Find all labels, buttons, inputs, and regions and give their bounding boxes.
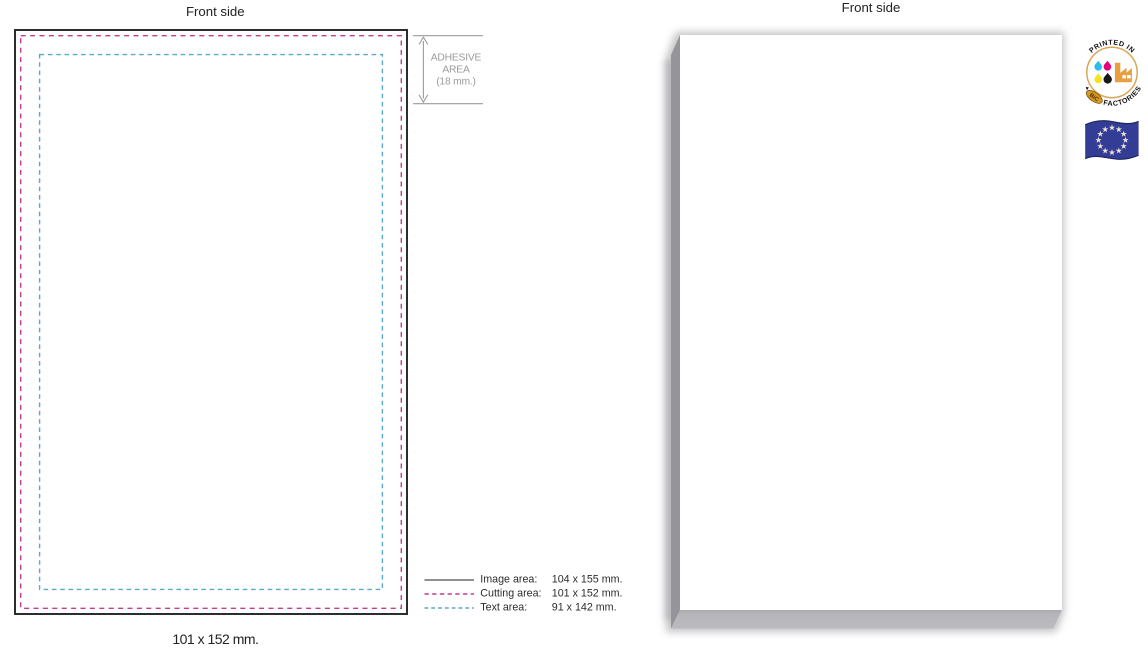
svg-text:Cutting area:: Cutting area: xyxy=(480,588,541,600)
svg-text:Image area:: Image area: xyxy=(480,574,537,586)
svg-text:91 x 142 mm.: 91 x 142 mm. xyxy=(552,602,617,614)
svg-text:Front side: Front side xyxy=(186,4,245,19)
svg-text:Text area:: Text area: xyxy=(480,602,527,614)
svg-text:104 x 155 mm.: 104 x 155 mm. xyxy=(552,574,623,586)
svg-text:101 x 152 mm.: 101 x 152 mm. xyxy=(172,631,258,647)
svg-text:ADHESIVE: ADHESIVE xyxy=(431,52,482,63)
svg-text:AREA: AREA xyxy=(442,64,470,75)
svg-text:101 x 152 mm.: 101 x 152 mm. xyxy=(552,588,623,600)
svg-text:(18 mm.): (18 mm.) xyxy=(436,77,476,88)
svg-text:Front side: Front side xyxy=(842,0,901,15)
